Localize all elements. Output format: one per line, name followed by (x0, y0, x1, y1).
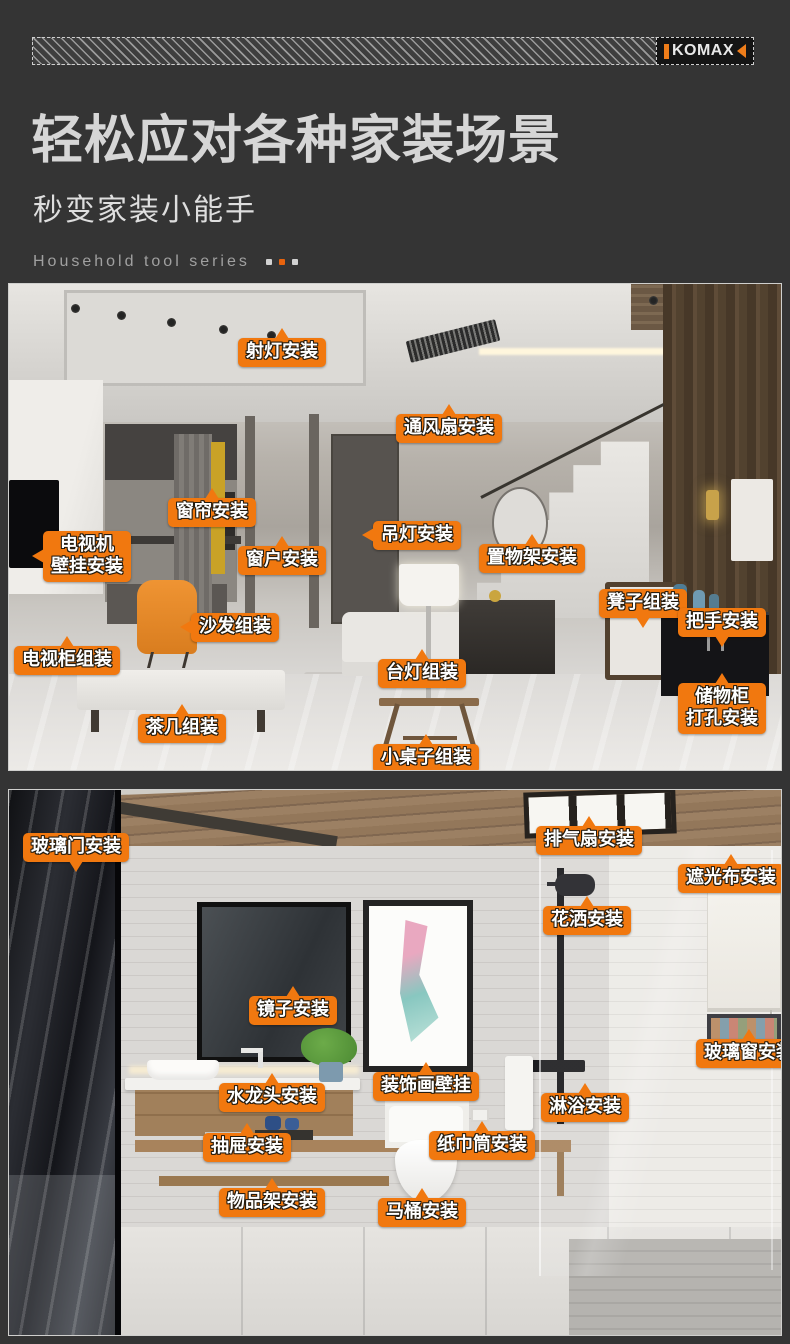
console-desk (459, 600, 555, 674)
vessel-sink (147, 1060, 219, 1080)
roller-shade (707, 880, 781, 1012)
callout-tv-wall-mount-install: 电视机壁挂安装 (43, 531, 131, 582)
bench-leg (91, 710, 99, 732)
callout-faucet-install: 水龙头安装 (219, 1083, 325, 1112)
paper-holder (471, 1108, 489, 1122)
callout-tea-table-assembly: 茶几组装 (138, 714, 226, 743)
page-subtitle: 秒变家装小能手 (33, 185, 257, 229)
callout-toilet-install: 马桶安装 (378, 1198, 466, 1227)
callout-art-wall-mount: 装饰画壁挂 (373, 1072, 479, 1101)
callout-rack-install: 物品架安装 (219, 1188, 325, 1217)
spotlight (117, 311, 126, 320)
callout-handle-install: 把手安装 (678, 608, 766, 637)
spotlight (219, 325, 228, 334)
callout-sofa-assembly: 沙发组装 (191, 613, 279, 642)
spotlight (167, 318, 176, 327)
callout-storage-cabinet-drill-install: 储物柜打孔安装 (678, 683, 766, 734)
spotlight (71, 304, 80, 313)
callout-pendant-lamp-install: 吊灯安装 (373, 521, 461, 550)
callout-stool-assembly: 凳子组装 (599, 589, 687, 618)
callout-blackout-shade-install: 遮光布安装 (678, 864, 782, 893)
spotlight (649, 296, 658, 305)
callout-spotlight-install: 射灯安装 (238, 338, 326, 367)
callout-glass-door-install: 玻璃门安装 (23, 833, 129, 862)
series-row: Household tool series (33, 253, 298, 271)
table-lamp-shade (399, 564, 459, 606)
series-dot (279, 259, 285, 265)
callout-curtain-install: 窗帘安装 (168, 498, 256, 527)
callout-shelf-install: 置物架安装 (479, 544, 585, 573)
callout-window-install: 窗户安装 (238, 546, 326, 575)
series-dots (266, 259, 298, 265)
series-dot (292, 259, 298, 265)
promo-page: KOMAX 轻松应对各种家装场景 秒变家装小能手 Household tool … (0, 0, 790, 1344)
faucet (241, 1048, 263, 1053)
callout-table-lamp-assembly: 台灯组装 (378, 659, 466, 688)
page-title: 轻松应对各种家装场景 (31, 98, 561, 173)
orange-chair-legs (147, 652, 189, 668)
zebra-art-frame (363, 900, 473, 1072)
wall-art (731, 479, 773, 561)
wall-sconce (706, 490, 719, 520)
komax-logo: KOMAX (656, 37, 754, 65)
shower-mixer (529, 1060, 585, 1072)
bench-leg (257, 710, 265, 732)
callout-exhaust-fan-install: 排气扇安装 (536, 826, 642, 855)
callout-drawer-install: 抽屉安装 (203, 1133, 291, 1162)
callout-small-table-assembly: 小桌子组装 (373, 744, 479, 771)
logo-text: KOMAX (672, 43, 734, 59)
callout-vent-fan-install: 通风扇安装 (396, 414, 502, 443)
glass-partition-edge (539, 846, 541, 1276)
plant-vase (319, 1062, 343, 1082)
living-room-photo: 射灯安装通风扇安装窗帘安装电视机壁挂安装窗户安装吊灯安装置物架安装凳子组装把手安… (8, 283, 782, 771)
shower-arm (547, 882, 561, 886)
blue-towel (265, 1116, 281, 1130)
orange-chair (137, 580, 197, 654)
brand-banner: KOMAX (32, 37, 754, 65)
white-towel (505, 1056, 533, 1130)
callout-tv-cabinet-assembly: 电视柜组装 (14, 646, 120, 675)
logo-bar-icon (664, 44, 669, 59)
callout-mirror-install: 镜子安装 (249, 996, 337, 1025)
bathroom-photo: 玻璃门安装排气扇安装遮光布安装花洒安装镜子安装玻璃窗安装水龙头安装装饰画壁挂淋浴… (8, 789, 782, 1336)
door-frame (309, 414, 319, 628)
callout-shower-install: 淋浴安装 (541, 1093, 629, 1122)
plant (301, 1028, 357, 1066)
callout-paper-holder-install: 纸巾筒安装 (429, 1131, 535, 1160)
glass-door-lower (9, 1175, 115, 1335)
callout-glass-window-install: 玻璃窗安装 (696, 1039, 782, 1068)
logo-arrow-icon (737, 44, 746, 58)
shelf-support (557, 1152, 564, 1196)
shower-floor (569, 1239, 782, 1335)
series-dot (266, 259, 272, 265)
blue-towel (285, 1118, 299, 1130)
shower-head (555, 874, 595, 896)
callout-showerhead-install: 花洒安装 (543, 906, 631, 935)
series-label: Household tool series (33, 253, 250, 271)
